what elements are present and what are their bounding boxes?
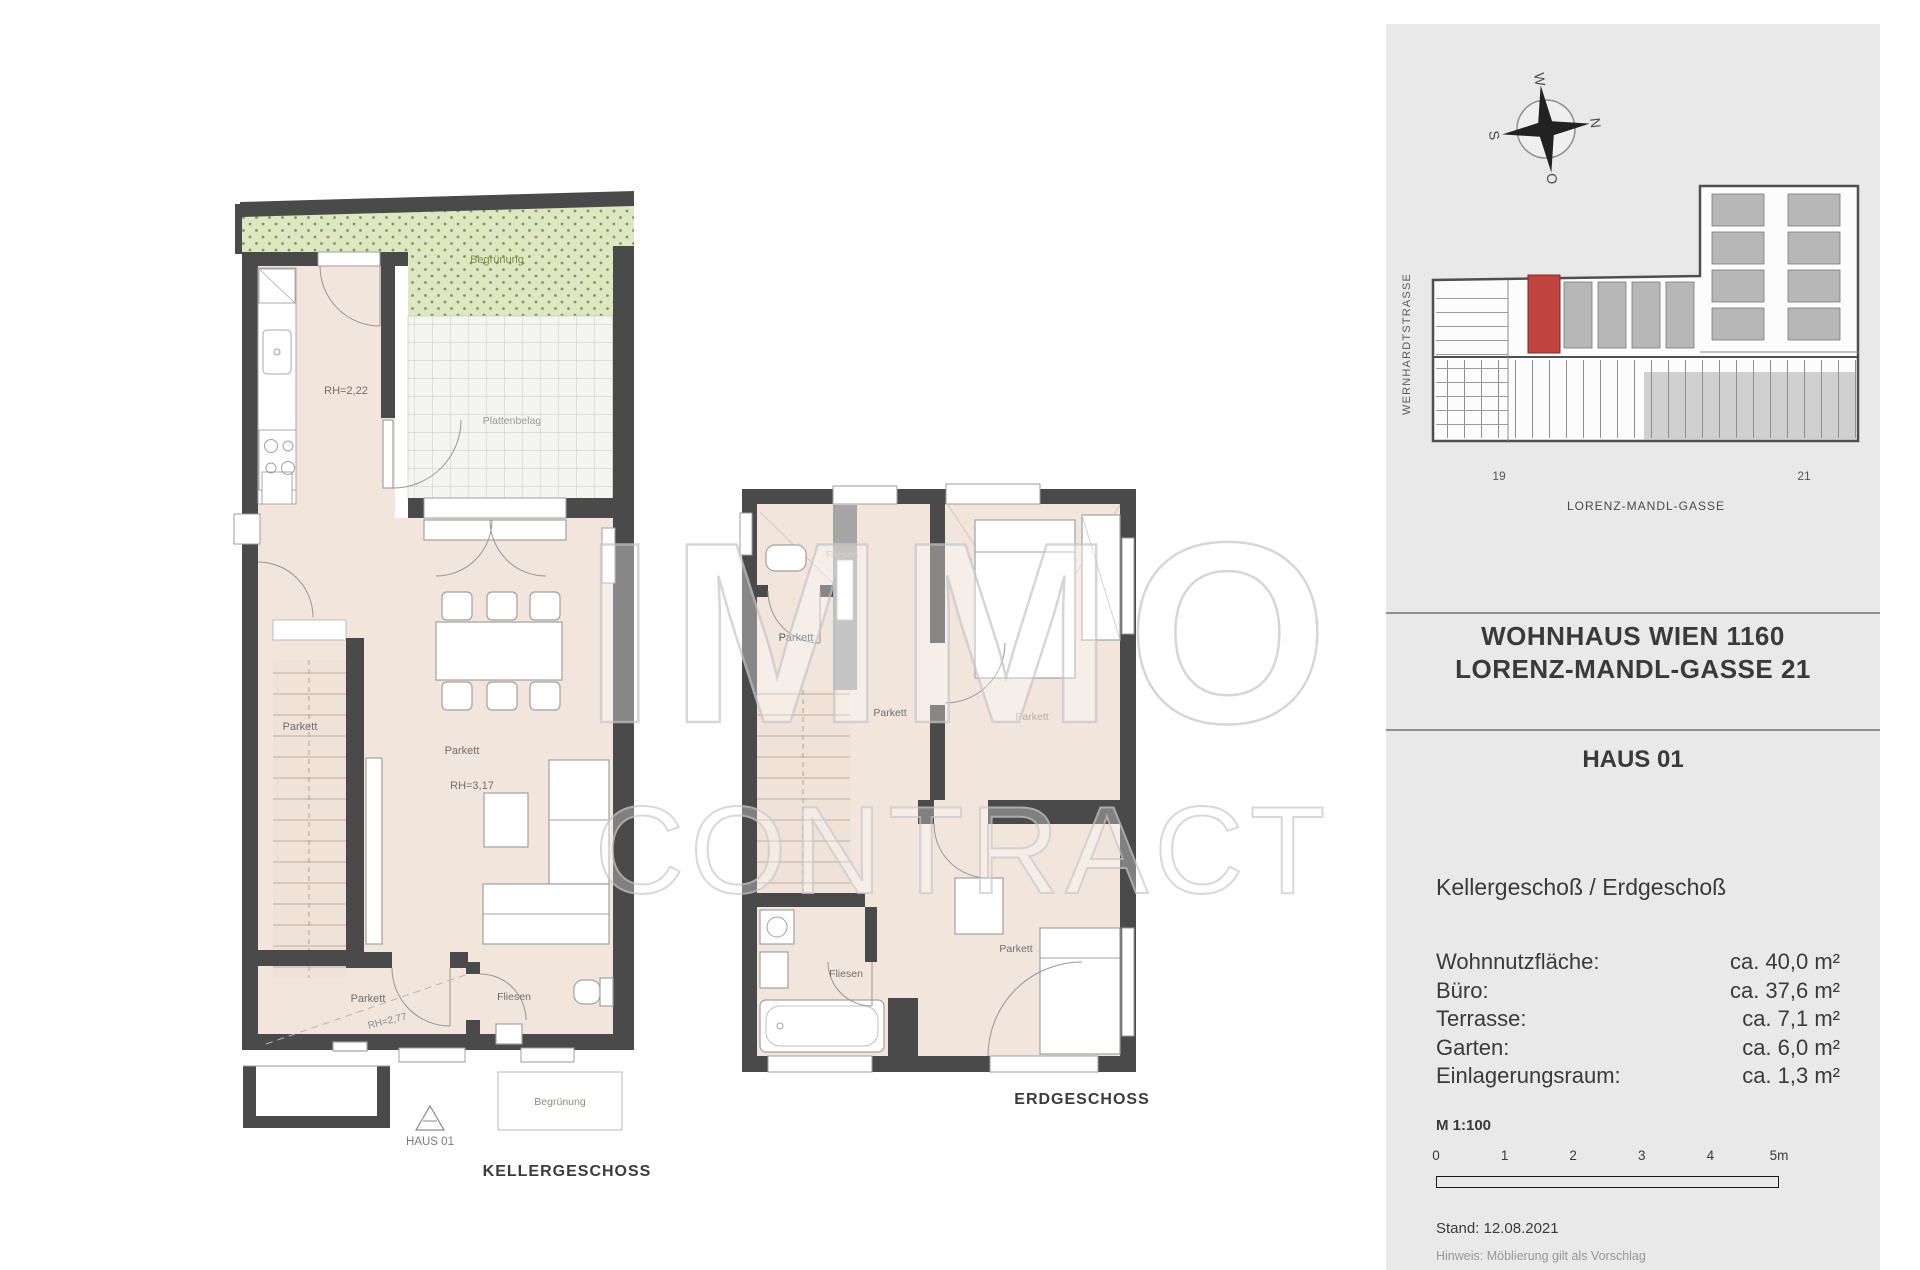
eg-caption: ERDGESCHOSS: [1014, 1091, 1149, 1108]
scale-label: M 1:100: [1436, 1117, 1491, 1134]
kg-label-begruenung: Begrünung: [470, 254, 524, 266]
area-value: ca. 37,6 m²: [1730, 978, 1840, 1004]
kg-label-parkett-living: Parkett: [445, 745, 480, 757]
kg-label-plattenbelag: Plattenbelag: [483, 415, 542, 427]
area-value: ca. 7,1 m²: [1742, 1006, 1840, 1032]
street-vertical: WERNHARDTSTRASSE: [1401, 273, 1413, 415]
info-panel: N O S W WERNHARDTSTRASSE: [1386, 24, 1880, 1270]
area-label: Garten:: [1436, 1035, 1509, 1061]
furnishing-note: Hinweis: Möblierung gilt als Vorschlag: [1436, 1249, 1646, 1263]
eg-label-fliesen-bath: Fliesen: [829, 968, 863, 980]
eg-label-parkett-room2: Parkett: [999, 943, 1032, 955]
area-row: Büro: ca. 37,6 m²: [1436, 978, 1840, 1007]
area-row: Garten: ca. 6,0 m²: [1436, 1035, 1840, 1064]
unit-title: HAUS 01: [1386, 746, 1880, 774]
area-value: ca. 40,0 m²: [1730, 949, 1840, 975]
watermark-line2: CONTRACT: [595, 782, 1332, 920]
scale-tick: 3: [1638, 1148, 1646, 1163]
kg-label-begruenung-box: Begrünung: [534, 1096, 586, 1108]
title-line2: LORENZ-MANDL-GASSE 21: [1455, 654, 1811, 684]
kg-label-parkett-corridor: Parkett: [351, 993, 386, 1005]
kg-house-marker: HAUS 01: [406, 1136, 454, 1148]
divider: [1386, 729, 1880, 731]
kg-label-fliesen: Fliesen: [497, 991, 531, 1003]
date-stamp: Stand: 12.08.2021: [1436, 1220, 1559, 1237]
area-label: Terrasse:: [1436, 1006, 1526, 1032]
area-value: ca. 6,0 m²: [1742, 1035, 1840, 1061]
title-block: WOHNHAUS WIEN 1160 LORENZ-MANDL-GASSE 21: [1386, 620, 1880, 686]
area-label: Büro:: [1436, 978, 1489, 1004]
kg-caption: KELLERGESCHOSS: [483, 1163, 652, 1180]
scale-tick: 0: [1432, 1148, 1440, 1163]
site-house-no-right: 21: [1797, 469, 1811, 483]
area-label: Einlagerungsraum:: [1436, 1063, 1621, 1089]
kg-kitchen: [258, 268, 296, 504]
site-plan: WERNHARDTSTRASSE 19 21 LORENZ-MANDL-GASS…: [1396, 172, 1866, 517]
area-table: Wohnnutzfläche: ca. 40,0 m² Büro: ca. 37…: [1436, 949, 1840, 1092]
title-line1: WOHNHAUS WIEN 1160: [1481, 621, 1785, 651]
kg-label-rh-living: RH=3,17: [450, 780, 494, 792]
kg-label-rh-kitchen: RH=2,22: [324, 385, 368, 397]
area-value: ca. 1,3 m²: [1742, 1063, 1840, 1089]
compass-w: W: [1531, 72, 1549, 88]
scale-tick: 2: [1569, 1148, 1577, 1163]
compass-n: N: [1587, 117, 1604, 129]
area-row: Einlagerungsraum: ca. 1,3 m²: [1436, 1063, 1840, 1092]
street-bottom: LORENZ-MANDL-GASSE: [1567, 499, 1725, 513]
area-row: Terrasse: ca. 7,1 m²: [1436, 1006, 1840, 1035]
area-label: Wohnnutzfläche:: [1436, 949, 1599, 975]
scale-tick: 1: [1501, 1148, 1509, 1163]
scale-ticks: 0 1 2 3 4 5m: [1436, 1148, 1781, 1164]
scale-tick: 5m: [1770, 1148, 1789, 1163]
area-row: Wohnnutzfläche: ca. 40,0 m²: [1436, 949, 1840, 978]
compass-star-icon: [1497, 80, 1595, 178]
compass-s: S: [1486, 130, 1503, 141]
site-house-no-left: 19: [1492, 469, 1506, 483]
scale-bar: [1436, 1176, 1779, 1188]
divider: [1386, 612, 1880, 614]
watermark-line1: IMMO: [584, 488, 1342, 777]
watermark: IMMO CONTRACT: [584, 488, 1342, 920]
floor-names: Kellergeschoß / Erdgeschoß: [1436, 874, 1726, 901]
kg-label-parkett-stairs: Parkett: [283, 721, 318, 733]
scale-tick: 4: [1707, 1148, 1715, 1163]
site-highlighted-unit: [1528, 275, 1560, 353]
